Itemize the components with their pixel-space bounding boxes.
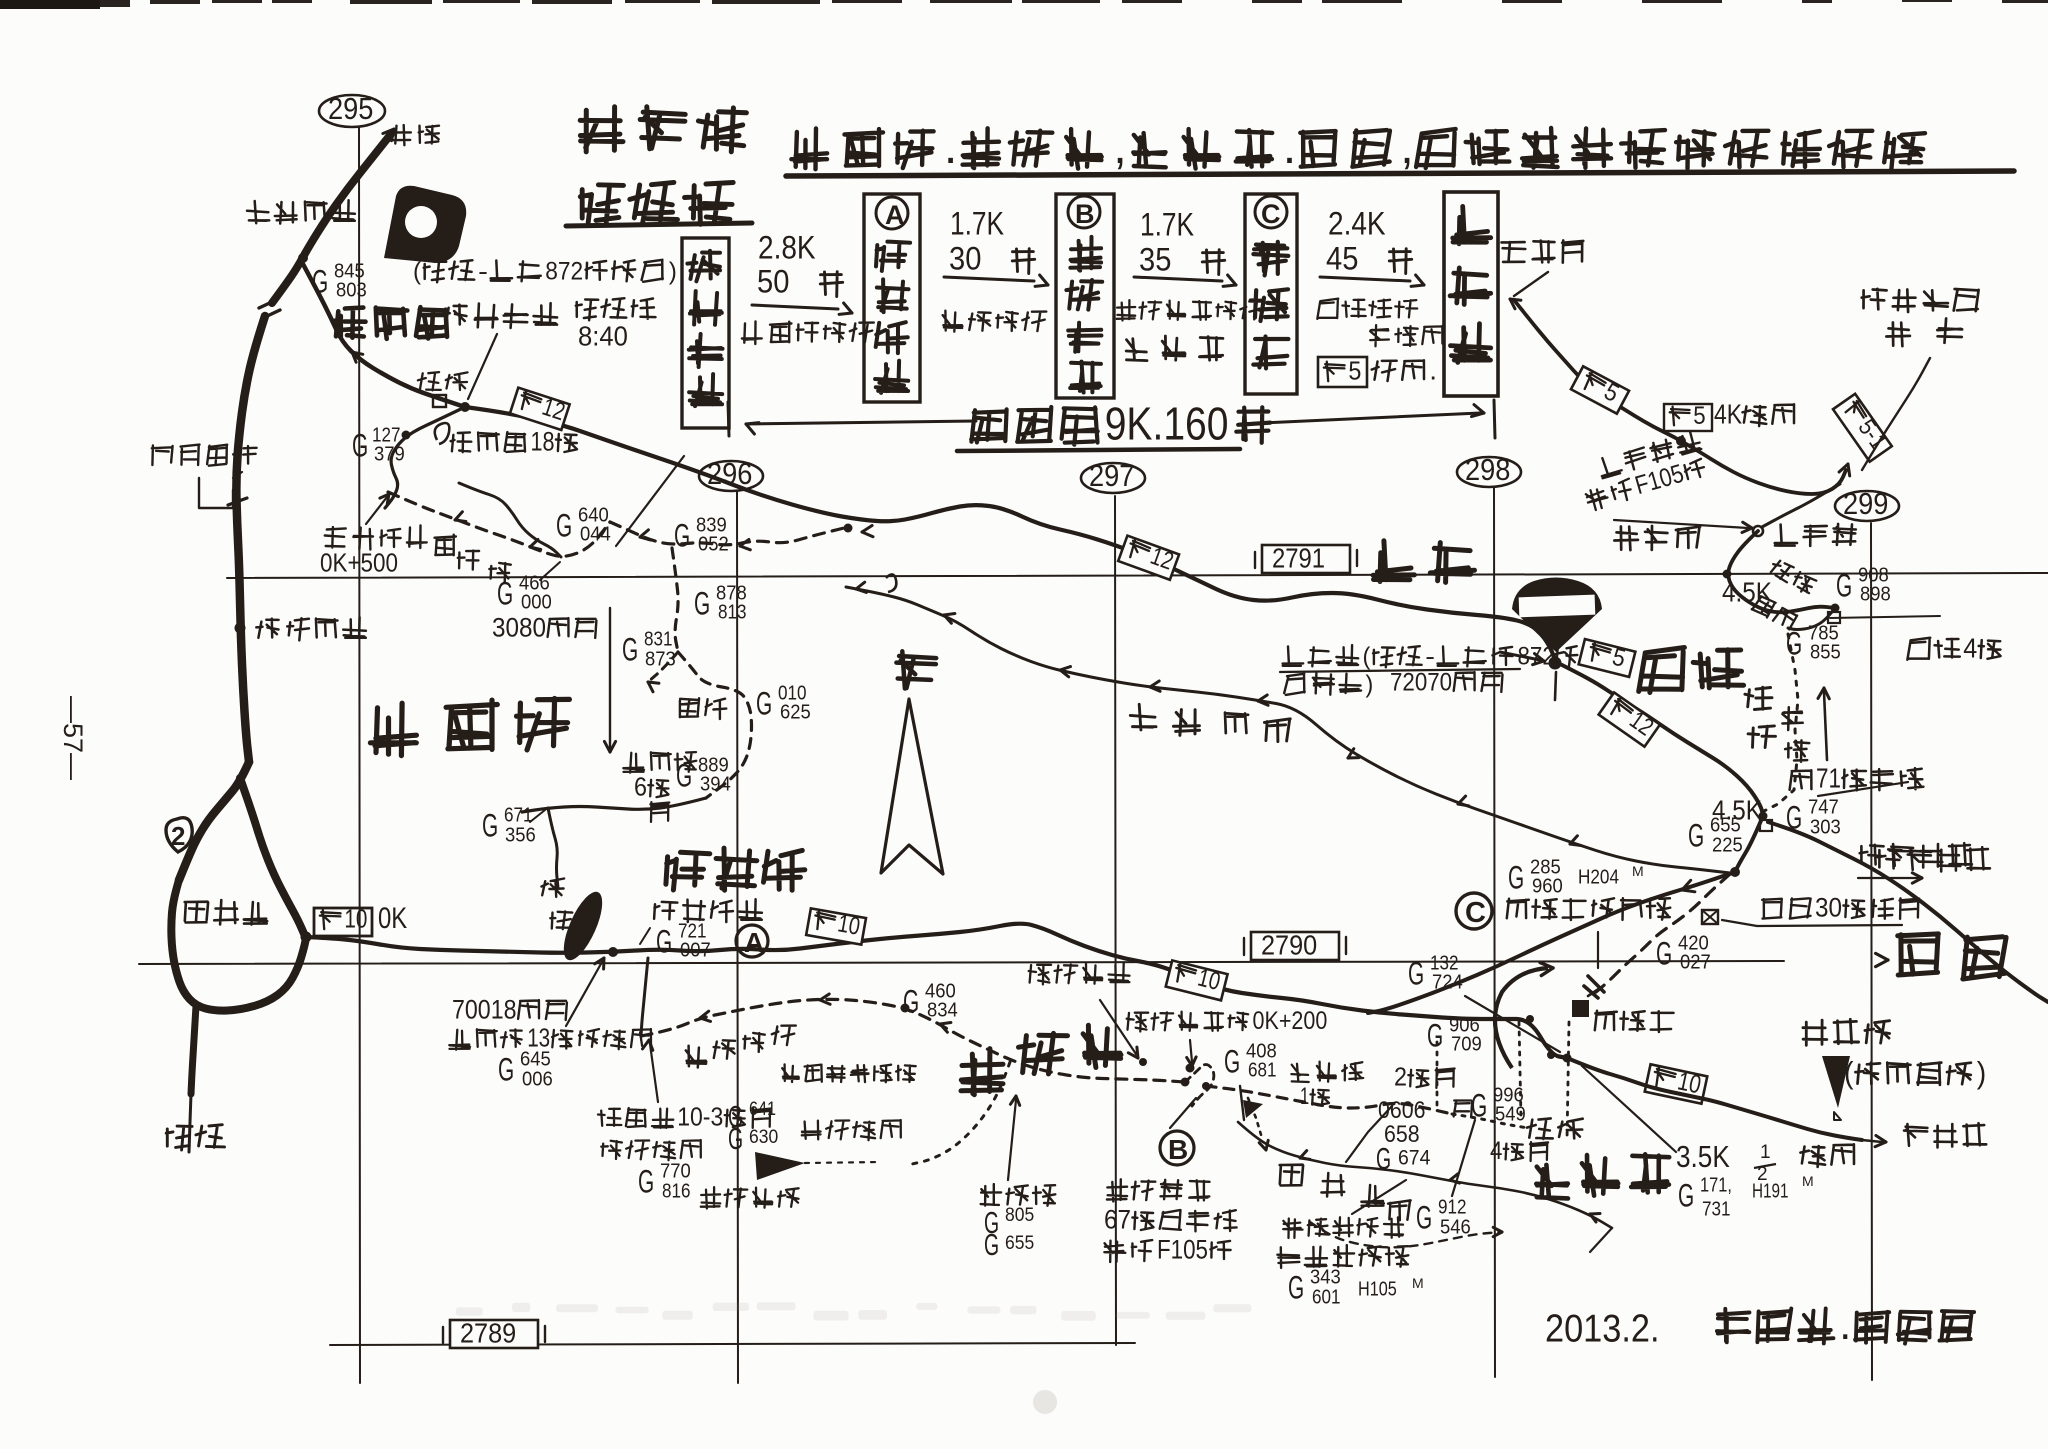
svg-text:052: 052 xyxy=(698,533,729,556)
svg-text:0K: 0K xyxy=(378,903,408,935)
svg-text:10: 10 xyxy=(836,910,862,940)
svg-text:3.5K: 3.5K xyxy=(1676,1141,1730,1174)
svg-text:G: G xyxy=(622,632,638,668)
svg-text:10: 10 xyxy=(344,906,367,934)
svg-text:B: B xyxy=(1075,199,1095,229)
svg-text:813: 813 xyxy=(718,601,747,624)
svg-text:G: G xyxy=(656,924,672,960)
svg-text:F105: F105 xyxy=(1157,1235,1208,1265)
svg-text:8:40: 8:40 xyxy=(578,320,628,351)
svg-text:834: 834 xyxy=(927,999,958,1022)
svg-text:2.8K: 2.8K xyxy=(758,230,816,266)
svg-text:.: . xyxy=(1839,1301,1851,1349)
svg-text:72070: 72070 xyxy=(1390,670,1452,697)
svg-text:674: 674 xyxy=(1398,1144,1430,1169)
svg-text:.: . xyxy=(1429,354,1437,385)
svg-text:655: 655 xyxy=(1005,1232,1034,1254)
svg-text:G: G xyxy=(1288,1270,1304,1306)
svg-text:G: G xyxy=(756,686,772,722)
svg-text:M: M xyxy=(1802,1173,1814,1189)
svg-text:C: C xyxy=(1261,199,1281,229)
svg-text:,: , xyxy=(1400,120,1414,174)
svg-text:816: 816 xyxy=(662,1180,691,1203)
svg-text:225: 225 xyxy=(1712,834,1743,857)
svg-text:H204: H204 xyxy=(1578,866,1619,889)
svg-text:G: G xyxy=(728,1123,743,1156)
svg-text:A: A xyxy=(885,200,905,230)
svg-text:1.7K: 1.7K xyxy=(1140,207,1194,243)
svg-text:G: G xyxy=(482,808,498,844)
svg-text:30: 30 xyxy=(949,241,981,277)
svg-text:641: 641 xyxy=(749,1098,776,1120)
svg-text:006: 006 xyxy=(522,1068,553,1091)
svg-text:898: 898 xyxy=(1860,583,1891,606)
svg-text:(: ( xyxy=(1363,644,1371,671)
svg-text:C: C xyxy=(1465,897,1486,929)
svg-text:731: 731 xyxy=(1702,1198,1731,1221)
svg-text:G: G xyxy=(903,984,919,1020)
svg-text:(: ( xyxy=(413,257,422,285)
svg-text:394: 394 xyxy=(700,773,731,796)
svg-text:171,: 171, xyxy=(1700,1174,1732,1197)
svg-text:855: 855 xyxy=(1810,641,1841,664)
svg-text:803: 803 xyxy=(336,279,367,302)
svg-text:601: 601 xyxy=(1312,1286,1341,1309)
svg-text:2791: 2791 xyxy=(1272,542,1325,573)
svg-text:295: 295 xyxy=(328,93,373,126)
svg-text:872: 872 xyxy=(545,257,583,285)
svg-text:0606: 0606 xyxy=(1378,1097,1426,1124)
svg-text:297: 297 xyxy=(1089,460,1134,493)
svg-text:3080: 3080 xyxy=(492,613,546,643)
svg-text:5: 5 xyxy=(1348,358,1361,386)
svg-text:681: 681 xyxy=(1248,1059,1277,1082)
svg-text:1.7K: 1.7K xyxy=(950,206,1004,242)
svg-text:0K+500: 0K+500 xyxy=(320,550,398,578)
svg-text:G: G xyxy=(1688,818,1704,854)
svg-text:630: 630 xyxy=(749,1126,778,1148)
svg-text:): ) xyxy=(1366,672,1374,699)
svg-text:50: 50 xyxy=(757,264,789,300)
svg-text:G: G xyxy=(312,264,328,300)
svg-text:.: . xyxy=(1283,120,1297,174)
svg-text:296: 296 xyxy=(707,458,752,491)
svg-text:H105: H105 xyxy=(1358,1278,1397,1301)
svg-text:45: 45 xyxy=(1326,241,1358,277)
svg-text:805: 805 xyxy=(1005,1204,1034,1226)
svg-text:(: ( xyxy=(1844,1057,1854,1090)
svg-text:): ) xyxy=(1977,1057,1987,1090)
svg-text:G: G xyxy=(1836,568,1852,604)
svg-text:379: 379 xyxy=(374,443,405,466)
svg-text:4: 4 xyxy=(1963,632,1977,663)
svg-text:G: G xyxy=(984,1229,999,1262)
svg-text:H191: H191 xyxy=(1752,1180,1789,1203)
svg-text:4.5K: 4.5K xyxy=(1722,576,1772,607)
svg-text:A: A xyxy=(744,927,764,958)
svg-text:M: M xyxy=(1632,863,1644,879)
svg-text:B: B xyxy=(1168,1134,1188,1165)
svg-text:71: 71 xyxy=(1816,762,1841,793)
svg-text:35: 35 xyxy=(1139,242,1171,278)
svg-text:G: G xyxy=(1786,626,1802,662)
svg-text:709: 709 xyxy=(1451,1033,1482,1056)
svg-text:G: G xyxy=(1427,1018,1443,1054)
svg-text:G: G xyxy=(638,1164,654,1200)
svg-text:G: G xyxy=(676,758,692,794)
svg-text:G: G xyxy=(674,518,690,554)
svg-text:960: 960 xyxy=(1532,875,1563,898)
svg-text:.: . xyxy=(944,120,958,174)
svg-text:2789: 2789 xyxy=(460,1317,516,1348)
svg-text:G: G xyxy=(1471,1088,1487,1124)
svg-text:G: G xyxy=(497,576,513,612)
svg-text:2790: 2790 xyxy=(1261,929,1317,960)
svg-text:M: M xyxy=(1412,1275,1424,1291)
svg-text:G: G xyxy=(1408,956,1424,992)
svg-text:G: G xyxy=(1786,800,1802,836)
svg-text:1: 1 xyxy=(1760,1142,1771,1163)
svg-text:027: 027 xyxy=(1680,951,1711,974)
svg-text:298: 298 xyxy=(1465,454,1510,487)
svg-text:G: G xyxy=(1224,1044,1240,1080)
svg-text:): ) xyxy=(669,257,677,285)
svg-text:G: G xyxy=(1656,936,1672,972)
svg-text:303: 303 xyxy=(1810,816,1841,839)
svg-text:000: 000 xyxy=(521,591,552,614)
svg-text:30: 30 xyxy=(1815,893,1842,923)
svg-text:9K.160: 9K.160 xyxy=(1105,397,1229,449)
svg-text:044: 044 xyxy=(580,523,611,546)
svg-text:G: G xyxy=(1678,1178,1694,1214)
svg-text:4K: 4K xyxy=(1714,398,1742,429)
svg-text:70018: 70018 xyxy=(452,995,517,1025)
svg-text:67: 67 xyxy=(1104,1205,1131,1235)
svg-text:18: 18 xyxy=(531,427,555,457)
svg-text:1: 1 xyxy=(1300,1083,1309,1110)
svg-text:4: 4 xyxy=(1490,1138,1503,1165)
svg-text:G: G xyxy=(556,508,572,544)
svg-text:0K+200: 0K+200 xyxy=(1253,1008,1328,1035)
svg-text:356: 356 xyxy=(505,824,536,847)
svg-text:—57—: —57— xyxy=(58,696,88,780)
svg-text:873: 873 xyxy=(645,648,676,671)
svg-text:-: - xyxy=(478,257,488,285)
svg-text:625: 625 xyxy=(780,701,811,724)
svg-text:-: - xyxy=(1425,644,1435,671)
svg-text:2013.2.: 2013.2. xyxy=(1545,1308,1660,1351)
svg-text:G: G xyxy=(352,428,368,464)
svg-text:546: 546 xyxy=(1440,1216,1471,1239)
svg-text:299: 299 xyxy=(1843,488,1888,521)
svg-text:5: 5 xyxy=(1693,403,1705,430)
svg-text:G: G xyxy=(1508,860,1524,896)
svg-text:10-3: 10-3 xyxy=(677,1104,723,1132)
svg-text:G: G xyxy=(694,586,710,622)
svg-text:2: 2 xyxy=(171,821,185,851)
svg-text:2: 2 xyxy=(1394,1064,1407,1092)
svg-text:G: G xyxy=(1416,1200,1432,1236)
svg-text:,: , xyxy=(1113,120,1127,174)
svg-text:G: G xyxy=(498,1052,514,1088)
svg-text:2.4K: 2.4K xyxy=(1328,206,1386,242)
svg-text:6: 6 xyxy=(634,774,647,802)
